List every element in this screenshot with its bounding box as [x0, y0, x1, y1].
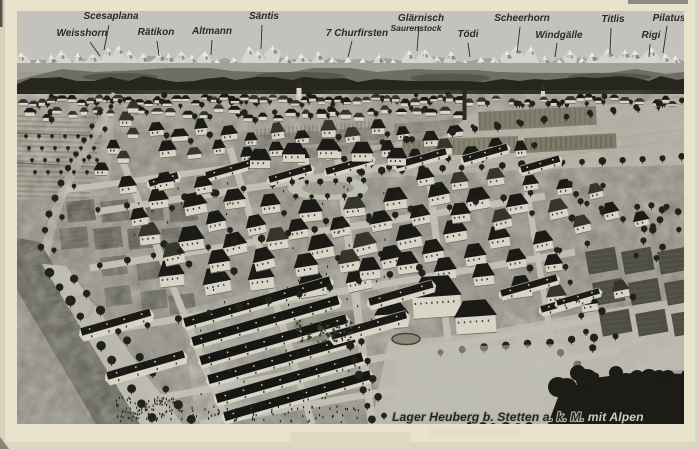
svg-text:Altmann: Altmann: [191, 26, 232, 37]
svg-text:Pilatus: Pilatus: [653, 13, 686, 24]
svg-text:Säntis: Säntis: [249, 11, 279, 22]
svg-text:Tödi: Tödi: [457, 29, 478, 40]
svg-text:7 Churfirsten: 7 Churfirsten: [326, 28, 388, 39]
svg-text:Titlis: Titlis: [601, 14, 625, 25]
svg-text:Scheerhorn: Scheerhorn: [494, 13, 550, 24]
svg-text:Scesaplana: Scesaplana: [83, 11, 138, 22]
svg-text:Weisshorn: Weisshorn: [57, 28, 108, 39]
svg-text:Rätikon: Rätikon: [138, 27, 175, 38]
svg-text:Windgälle: Windgälle: [535, 30, 583, 41]
svg-text:Saurenstock: Saurenstock: [390, 23, 442, 33]
svg-text:Rigi: Rigi: [642, 30, 661, 41]
